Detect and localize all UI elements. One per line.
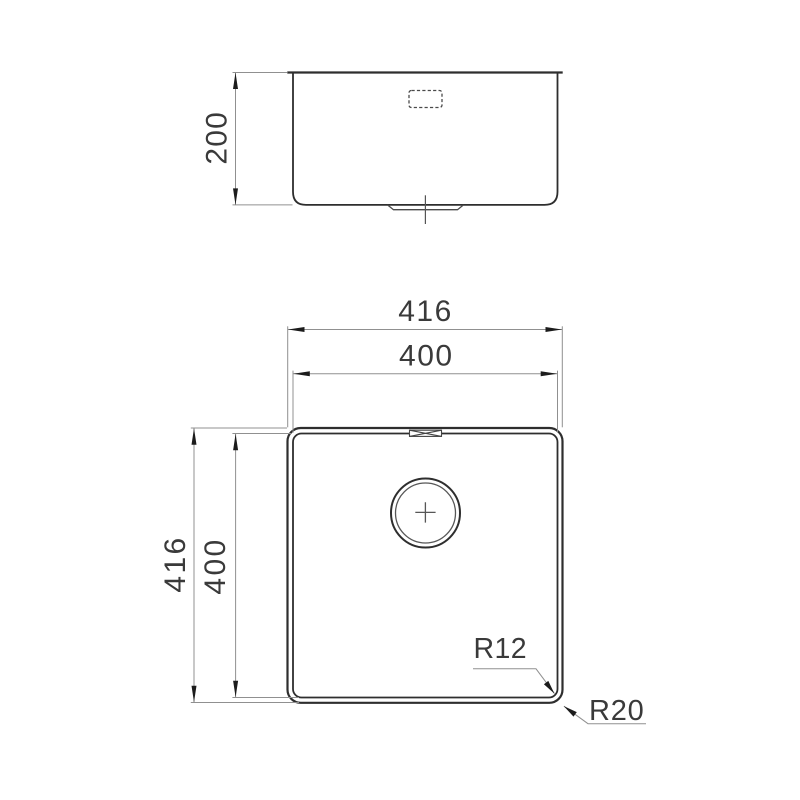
svg-text:200: 200	[201, 111, 234, 165]
svg-text:R12: R12	[474, 633, 527, 665]
svg-text:416: 416	[159, 535, 192, 592]
svg-text:400: 400	[399, 339, 454, 372]
svg-text:R20: R20	[589, 695, 645, 727]
svg-text:416: 416	[398, 295, 453, 328]
svg-text:400: 400	[199, 537, 232, 594]
